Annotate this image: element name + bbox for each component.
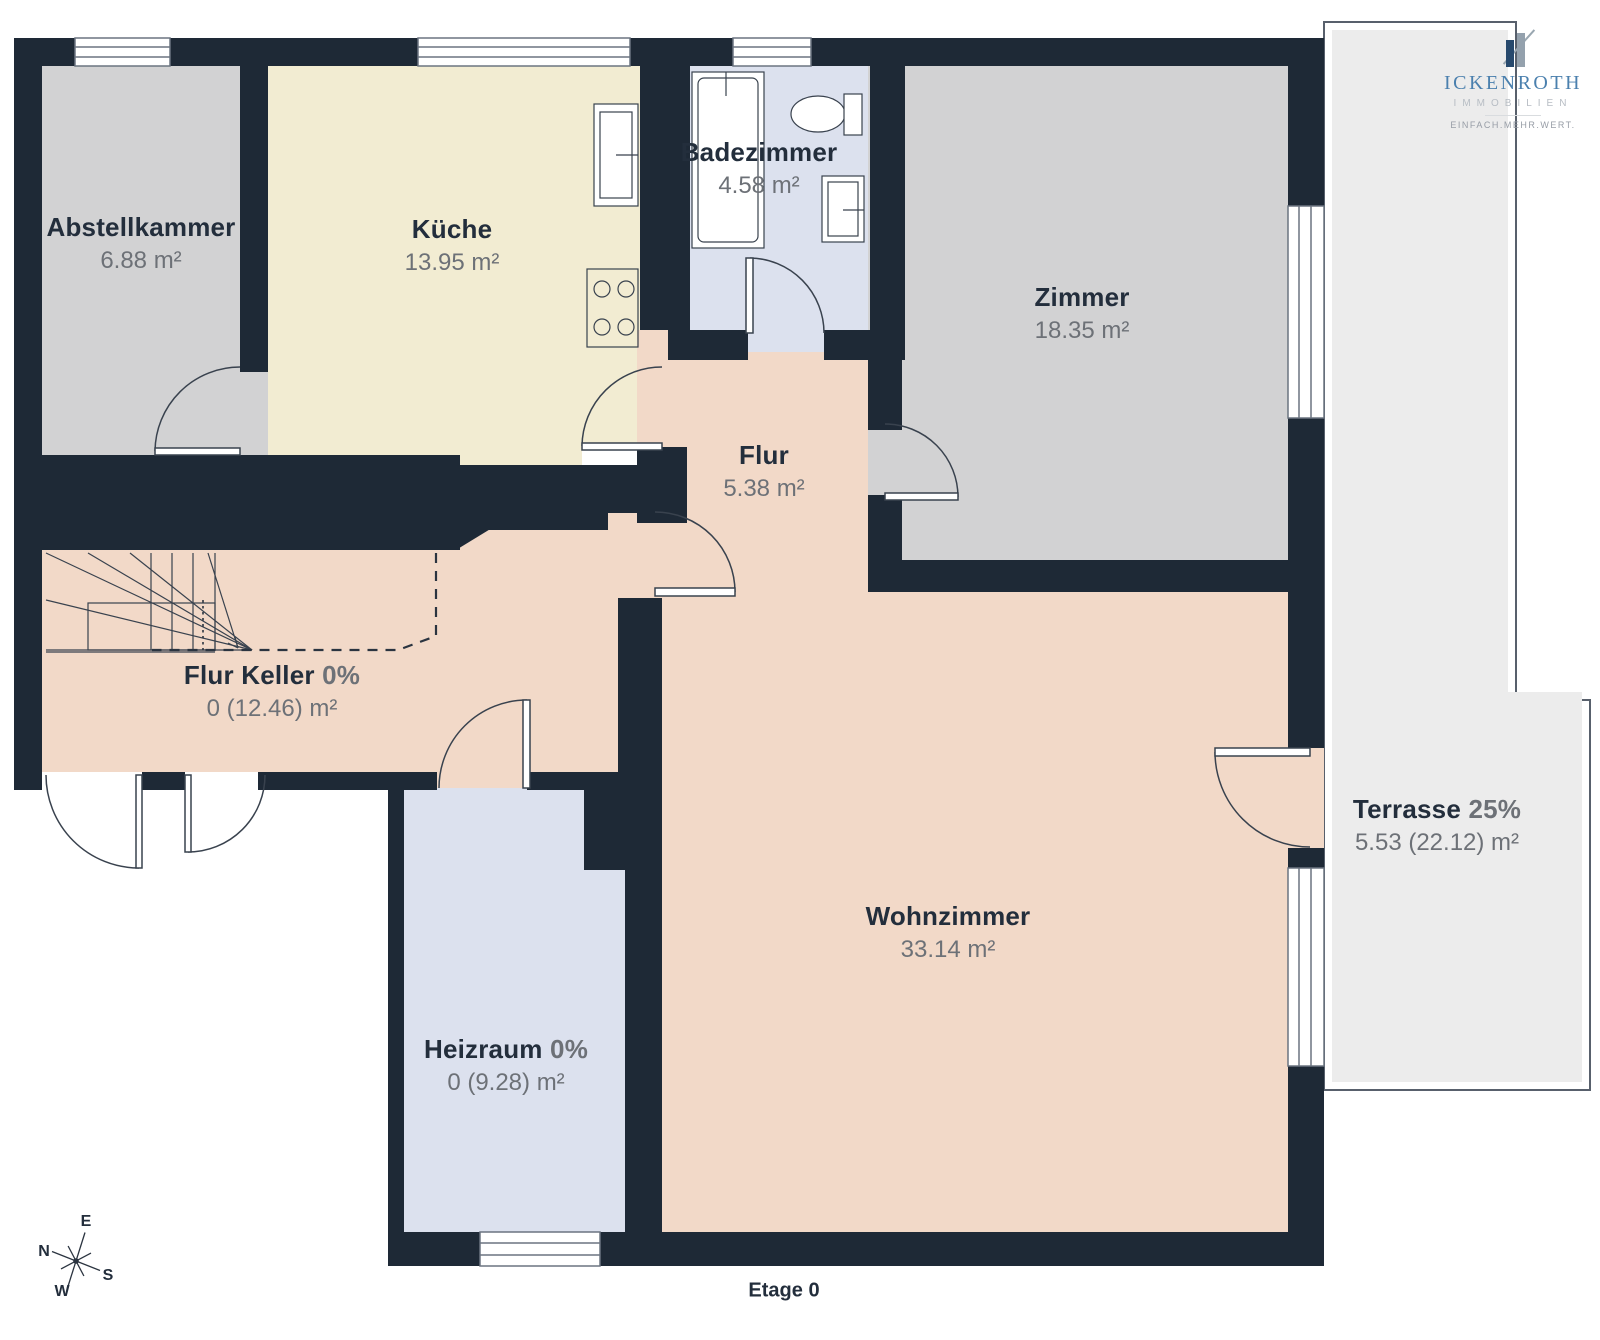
window-wohnzimmer (1288, 868, 1324, 1066)
window-abstellkammer (75, 38, 170, 66)
floor-flur-keller (42, 513, 664, 772)
compass-w: W (54, 1283, 70, 1300)
logo-divider (1485, 115, 1541, 116)
window-zimmer (1288, 206, 1324, 418)
compass-icon: E N S W (38, 1213, 113, 1300)
compass-s: S (103, 1267, 114, 1284)
toilet-icon (791, 94, 862, 135)
logo-subtitle: IMMOBILIEN (1438, 98, 1588, 109)
floor-zimmer (868, 66, 1288, 560)
bath-sink-icon (822, 176, 864, 242)
floor-abstellkammer (42, 66, 268, 455)
floorplan-page: E N S W Abstellkammer 6.88 m² Küche 13.9… (0, 0, 1600, 1340)
window-heizraum (480, 1232, 600, 1266)
bathtub-icon (692, 72, 764, 248)
logo-building-icon (1438, 28, 1588, 70)
terrace-door-opening (1288, 748, 1324, 848)
kitchen-sink-icon (594, 104, 638, 206)
terrace-area (1324, 22, 1590, 1090)
logo-tagline: EINFACH.MEHR.WERT. (1438, 120, 1588, 130)
window-badezimmer (733, 38, 811, 66)
compass-n: N (38, 1243, 50, 1260)
window-kueche (418, 38, 630, 66)
floor-label: Etage 0 (748, 1280, 819, 1303)
floorplan-drawing: E N S W (0, 0, 1600, 1340)
company-logo: ICKENROTH IMMOBILIEN EINFACH.MEHR.WERT. (1438, 28, 1588, 130)
logo-brand: ICKENROTH (1438, 72, 1588, 95)
door-entrance-1 (46, 775, 142, 868)
floor-wohnzimmer (662, 592, 1288, 1240)
compass-e: E (81, 1213, 92, 1230)
door-entrance-2 (185, 775, 265, 852)
